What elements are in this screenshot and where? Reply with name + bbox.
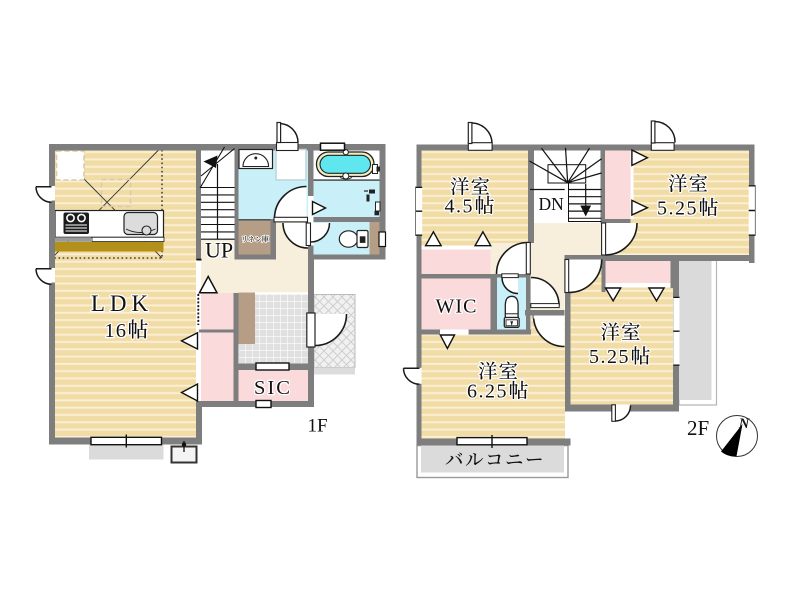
svg-text:LDK: LDK: [91, 291, 153, 316]
svg-text:4.5: 4.5: [445, 196, 475, 218]
svg-text:N: N: [738, 416, 750, 432]
svg-text:2F: 2F: [687, 416, 709, 440]
svg-text:WIC: WIC: [436, 296, 478, 318]
svg-text:1F: 1F: [308, 416, 328, 437]
svg-text:6.25: 6.25: [467, 381, 508, 403]
svg-text:DN: DN: [539, 194, 565, 214]
svg-text:5.25: 5.25: [589, 346, 630, 368]
svg-text:5.25: 5.25: [657, 198, 698, 220]
svg-text:SIC: SIC: [254, 377, 292, 399]
svg-text:UP: UP: [205, 238, 233, 263]
svg-text:16: 16: [105, 320, 128, 342]
